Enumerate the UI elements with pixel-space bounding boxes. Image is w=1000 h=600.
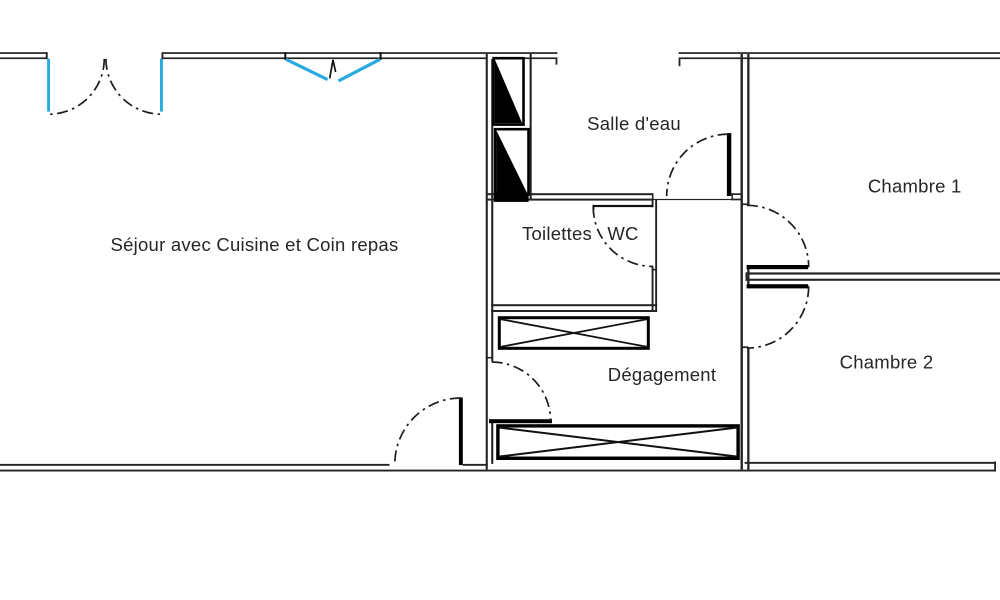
svg-text:Chambre 1: Chambre 1	[868, 176, 962, 197]
svg-text:Toilettes: Toilettes	[522, 223, 592, 244]
svg-text:Chambre 2: Chambre 2	[840, 352, 934, 373]
svg-text:Séjour avec Cuisine et Coin re: Séjour avec Cuisine et Coin repas	[111, 234, 399, 255]
svg-text:WC: WC	[607, 223, 638, 244]
svg-text:Dégagement: Dégagement	[608, 364, 716, 385]
svg-text:Salle d'eau: Salle d'eau	[587, 113, 681, 134]
